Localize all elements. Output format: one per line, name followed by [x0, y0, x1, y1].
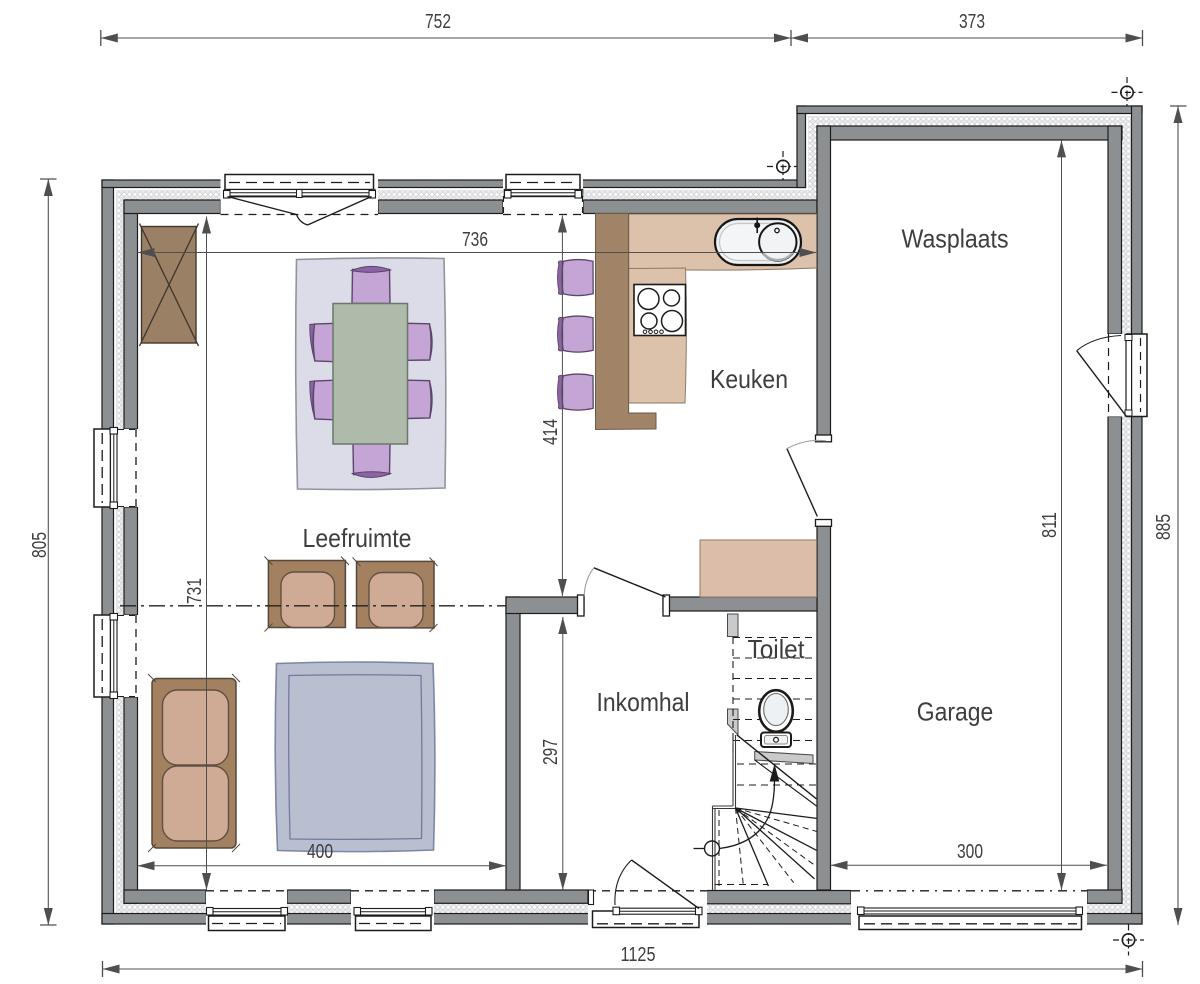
- svg-text:Leefruimte: Leefruimte: [303, 523, 412, 553]
- svg-text:Inkomhal: Inkomhal: [597, 687, 690, 717]
- svg-text:752: 752: [425, 11, 451, 33]
- svg-text:Wasplaats: Wasplaats: [902, 224, 1009, 254]
- svg-text:Toilet: Toilet: [748, 634, 806, 664]
- svg-text:297: 297: [540, 739, 562, 765]
- svg-text:300: 300: [957, 841, 983, 863]
- svg-text:Garage: Garage: [917, 697, 994, 727]
- svg-text:885: 885: [1153, 514, 1175, 540]
- svg-text:400: 400: [307, 841, 333, 863]
- svg-text:805: 805: [29, 532, 51, 558]
- svg-text:731: 731: [184, 578, 206, 604]
- svg-text:811: 811: [1039, 512, 1061, 538]
- svg-text:373: 373: [959, 11, 985, 33]
- svg-text:414: 414: [540, 419, 562, 445]
- svg-text:1125: 1125: [621, 944, 656, 966]
- svg-text:Keuken: Keuken: [710, 364, 788, 394]
- svg-text:736: 736: [462, 229, 488, 251]
